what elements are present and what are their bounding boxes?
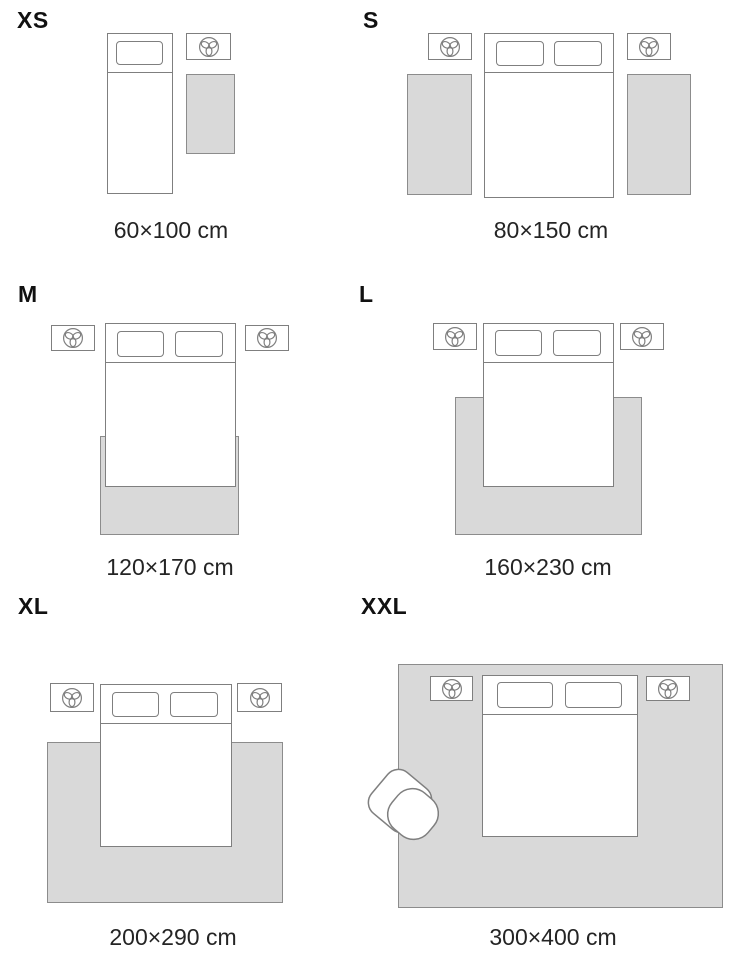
bed	[484, 33, 614, 198]
size-label-s: S	[363, 9, 379, 32]
size-label-xxl: XXL	[361, 595, 407, 618]
size-label-xs: XS	[17, 9, 49, 32]
lamp-icon	[255, 326, 279, 350]
dimension-label-xxl: 300×400 cm	[443, 926, 663, 949]
pillow	[565, 682, 622, 708]
lamp-icon	[61, 326, 85, 350]
nightstand	[646, 676, 690, 701]
dimension-label-s: 80×150 cm	[441, 219, 661, 242]
size-label-m: M	[18, 283, 38, 306]
lamp-icon	[656, 677, 680, 701]
nightstand	[433, 323, 477, 350]
nightstand	[245, 325, 289, 351]
rug	[407, 74, 472, 195]
bed	[483, 323, 614, 487]
pillow	[116, 41, 163, 65]
lamp-icon	[438, 35, 462, 59]
lamp-icon	[440, 677, 464, 701]
bed	[482, 675, 638, 837]
pillow	[112, 692, 159, 717]
dimension-label-m: 120×170 cm	[60, 556, 280, 579]
nightstand	[428, 33, 472, 60]
nightstand	[627, 33, 671, 60]
dimension-label-l: 160×230 cm	[438, 556, 658, 579]
lamp-icon	[60, 686, 84, 710]
nightstand	[186, 33, 231, 60]
lamp-icon	[197, 35, 221, 59]
pillow	[495, 330, 542, 356]
nightstand	[430, 676, 473, 701]
bed	[100, 684, 232, 847]
pillow	[496, 41, 544, 66]
rug	[627, 74, 691, 195]
pillow	[553, 330, 601, 356]
dimension-label-xl: 200×290 cm	[63, 926, 283, 949]
lamp-icon	[443, 325, 467, 349]
dimension-label-xs: 60×100 cm	[61, 219, 281, 242]
nightstand	[620, 323, 664, 350]
size-label-l: L	[359, 283, 374, 306]
bed	[105, 323, 236, 487]
lamp-icon	[630, 325, 654, 349]
nightstand	[50, 683, 94, 712]
pillow	[554, 41, 602, 66]
rug-size-guide: XS 60×100 cm S	[0, 0, 740, 960]
bed	[107, 33, 173, 194]
pillow	[117, 331, 164, 357]
armchair	[355, 758, 450, 853]
pillow	[175, 331, 223, 357]
lamp-icon	[248, 686, 272, 710]
nightstand	[237, 683, 282, 712]
pillow	[497, 682, 553, 708]
size-label-xl: XL	[18, 595, 48, 618]
rug	[186, 74, 235, 154]
lamp-icon	[637, 35, 661, 59]
nightstand	[51, 325, 95, 351]
pillow	[170, 692, 218, 717]
